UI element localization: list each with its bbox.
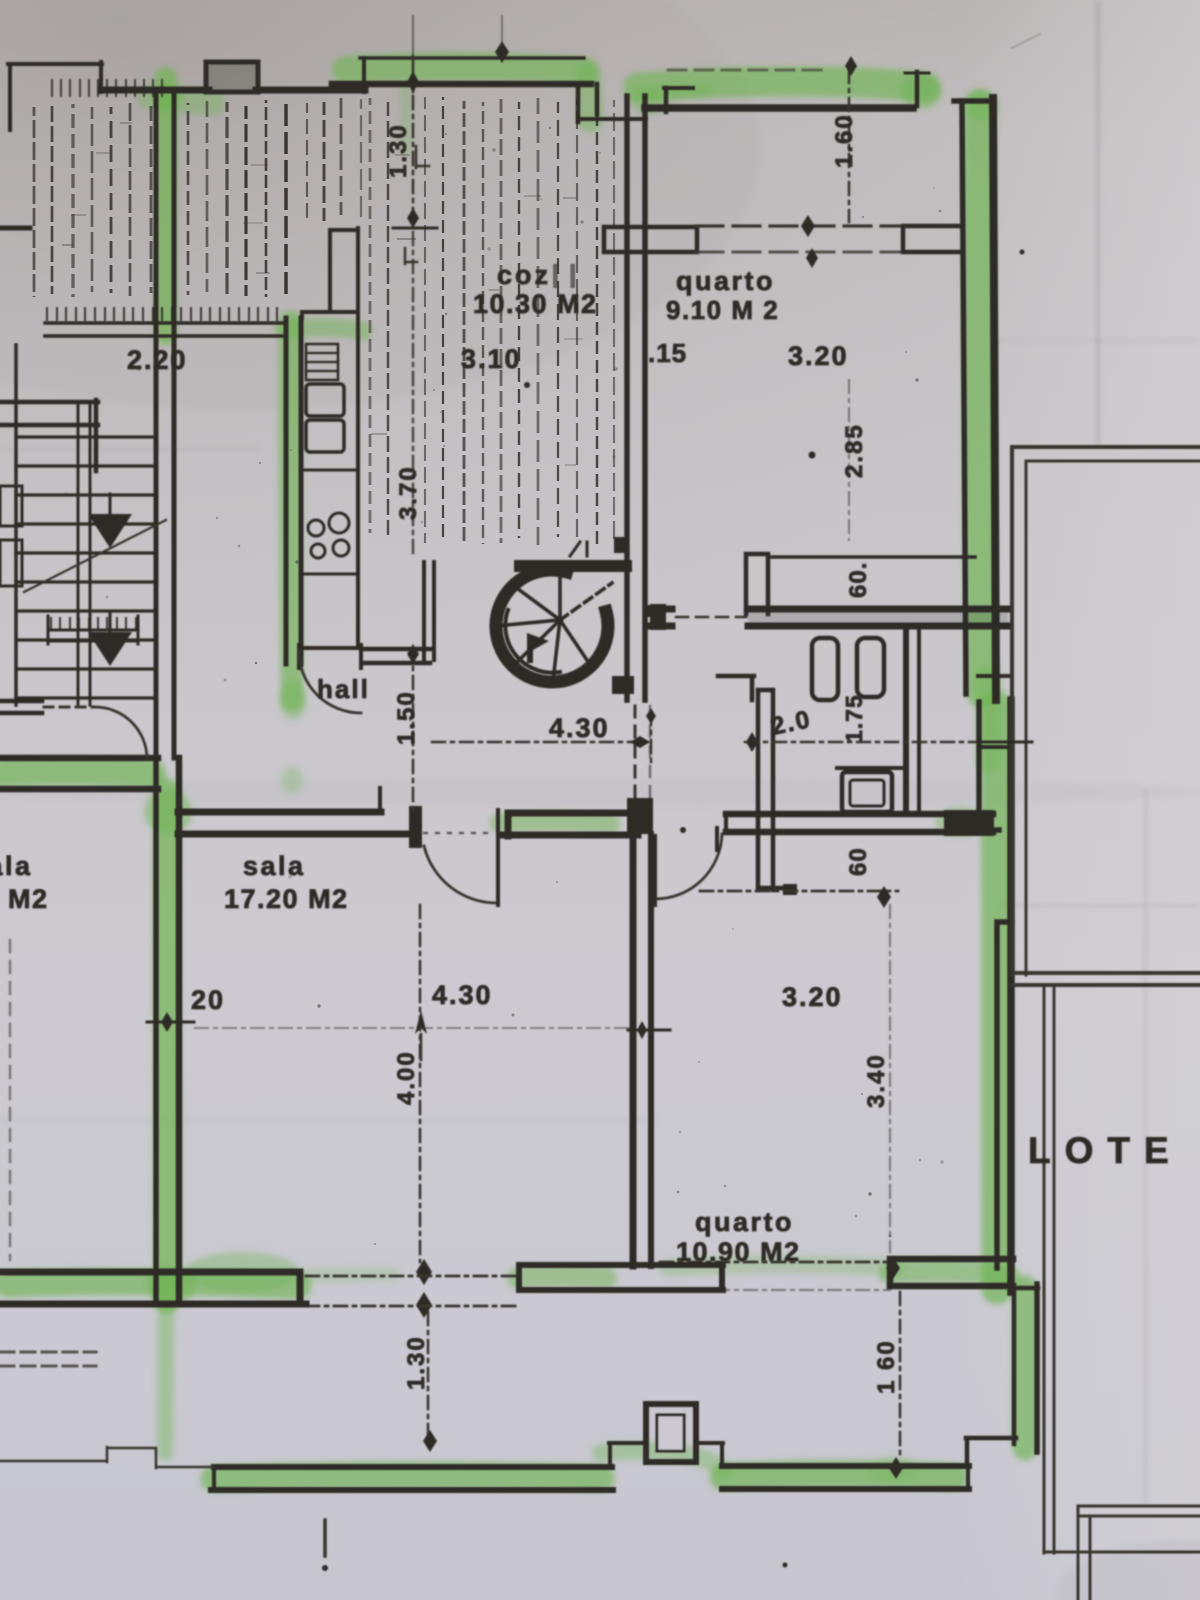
- svg-text:60.: 60.: [845, 562, 872, 598]
- svg-text:3.20: 3.20: [788, 341, 849, 371]
- svg-text:20: 20: [191, 985, 225, 1015]
- svg-text:| |: | |: [552, 261, 578, 288]
- svg-text:2.85: 2.85: [841, 423, 868, 478]
- svg-text:2.20: 2.20: [127, 345, 188, 375]
- svg-text:hall: hall: [317, 674, 370, 704]
- svg-text:3.20: 3.20: [782, 982, 843, 1012]
- svg-text:LOTE: LOTE: [1028, 1130, 1183, 1171]
- svg-text:sala: sala: [0, 851, 33, 881]
- svg-text:10.30 M2: 10.30 M2: [473, 289, 598, 319]
- svg-text:3.70: 3.70: [395, 465, 422, 520]
- svg-text:3.10: 3.10: [461, 344, 522, 374]
- svg-text:1.50: 1.50: [393, 690, 420, 745]
- svg-text:60: 60: [845, 847, 872, 876]
- svg-text:coz: coz: [497, 260, 551, 290]
- svg-text:1.30: 1.30: [385, 123, 412, 178]
- svg-text:.15: .15: [648, 338, 687, 368]
- svg-text:17.20 M2: 17.20 M2: [224, 884, 349, 914]
- svg-text:4.30: 4.30: [432, 980, 493, 1010]
- svg-text:4.30: 4.30: [549, 713, 610, 743]
- svg-text:1.60: 1.60: [831, 113, 858, 168]
- svg-text:10.90 M2: 10.90 M2: [676, 1237, 801, 1267]
- svg-text:quarto: quarto: [695, 1207, 794, 1237]
- svg-text:quarto: quarto: [676, 266, 775, 296]
- svg-text:4.00: 4.00: [393, 1050, 420, 1105]
- svg-text:90 M2: 90 M2: [0, 884, 49, 914]
- svg-text:9.10 M 2: 9.10 M 2: [666, 295, 779, 325]
- svg-text:3.40: 3.40: [863, 1053, 890, 1108]
- svg-text:1.75: 1.75: [841, 694, 867, 743]
- svg-text:sala: sala: [243, 851, 306, 881]
- svg-text:1.30: 1.30: [403, 1335, 430, 1390]
- svg-text:1 60: 1 60: [873, 1339, 900, 1394]
